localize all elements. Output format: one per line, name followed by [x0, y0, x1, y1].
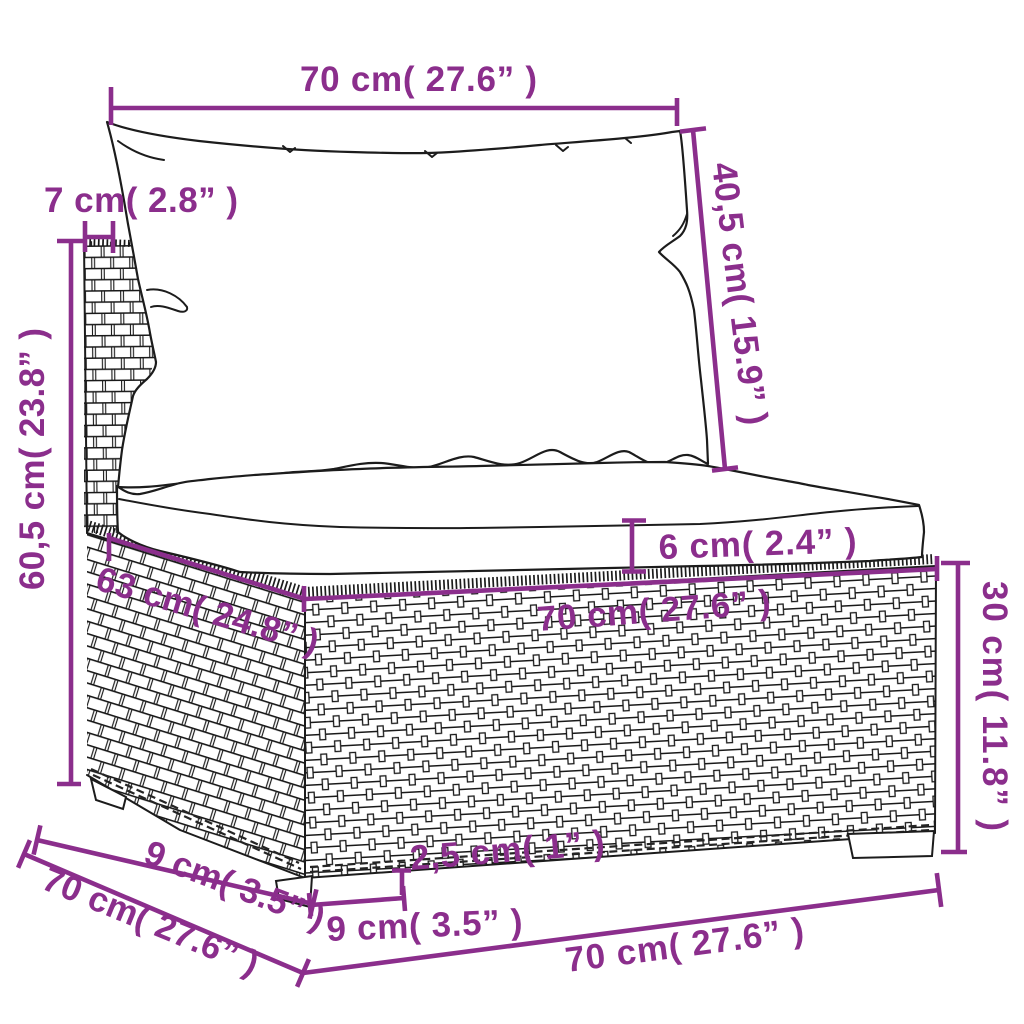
svg-text:70 cm( 27.6” ): 70 cm( 27.6” ): [300, 60, 537, 99]
svg-text:30 cm( 11.8” ): 30 cm( 11.8” ): [975, 581, 1014, 831]
svg-text:9 cm( 3.5” ): 9 cm( 3.5” ): [326, 902, 523, 949]
svg-text:7 cm( 2.8” ): 7 cm( 2.8” ): [44, 181, 238, 220]
svg-text:6 cm( 2.4” ): 6 cm( 2.4” ): [658, 521, 857, 567]
svg-text:60,5 cm( 23.8” ): 60,5 cm( 23.8” ): [13, 328, 52, 590]
